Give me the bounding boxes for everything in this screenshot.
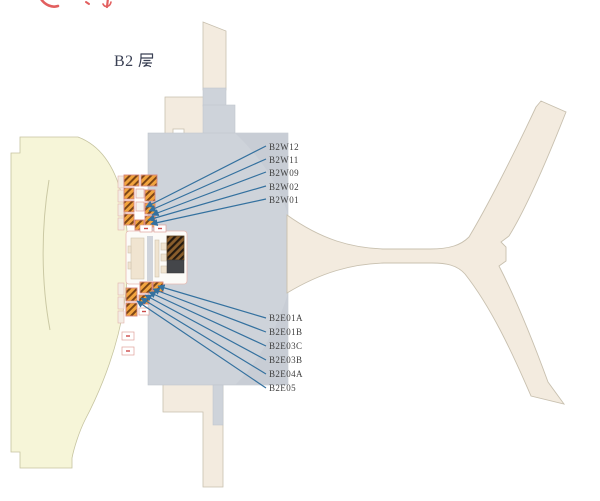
shaft-hatched bbox=[167, 236, 184, 260]
hatched-box bbox=[145, 190, 155, 201]
hatched-box bbox=[124, 175, 139, 186]
gate-label-west: B2W11 bbox=[269, 155, 299, 165]
shaft-solid bbox=[167, 260, 184, 273]
gate-label-east: B2E04A bbox=[269, 369, 303, 379]
gate-label-west: B2W02 bbox=[269, 182, 299, 192]
hatched-box bbox=[124, 201, 134, 212]
north-gray-strip bbox=[203, 88, 226, 106]
hatched-box bbox=[126, 288, 137, 301]
floor-plan: B2W12 B2W11 B2W09 B2W02 B2W01 B2E01A B2E… bbox=[0, 0, 600, 501]
gate-label-east: B2E01B bbox=[269, 327, 302, 337]
north-gray-block bbox=[203, 105, 235, 134]
hatched-box bbox=[124, 214, 134, 225]
north-strip bbox=[203, 22, 226, 90]
floor-title: B2 bbox=[114, 53, 153, 70]
floor-title-latin: B2 bbox=[114, 53, 134, 70]
dark-shaft bbox=[167, 236, 184, 273]
hatched-box bbox=[140, 282, 152, 293]
gate-label-west: B2W12 bbox=[269, 142, 299, 152]
gate-label-east: B2E01A bbox=[269, 313, 303, 323]
chinese-char-ceng bbox=[139, 54, 152, 67]
gate-label-east: B2E03C bbox=[269, 341, 302, 351]
hatched-box bbox=[124, 188, 134, 199]
gate-label-west: B2W01 bbox=[269, 195, 299, 205]
south-gray-strip bbox=[213, 385, 223, 425]
concourse-starfish bbox=[287, 101, 566, 404]
gate-label-east: B2E05 bbox=[269, 383, 296, 393]
hatched-box bbox=[126, 303, 137, 316]
gate-label-east: B2E03B bbox=[269, 355, 302, 365]
gtc-outline bbox=[11, 137, 128, 468]
gtc-crescent bbox=[11, 137, 128, 468]
clipped-red-marks bbox=[41, 0, 111, 7]
floor-plan-svg: B2W12 B2W11 B2W09 B2W02 B2W01 B2E01A B2E… bbox=[0, 0, 600, 501]
station-track bbox=[147, 236, 153, 281]
gate-labels-west: B2W12 B2W11 B2W09 B2W02 B2W01 bbox=[269, 142, 299, 205]
gate-label-west: B2W09 bbox=[269, 168, 299, 178]
hatched-box bbox=[141, 175, 157, 186]
